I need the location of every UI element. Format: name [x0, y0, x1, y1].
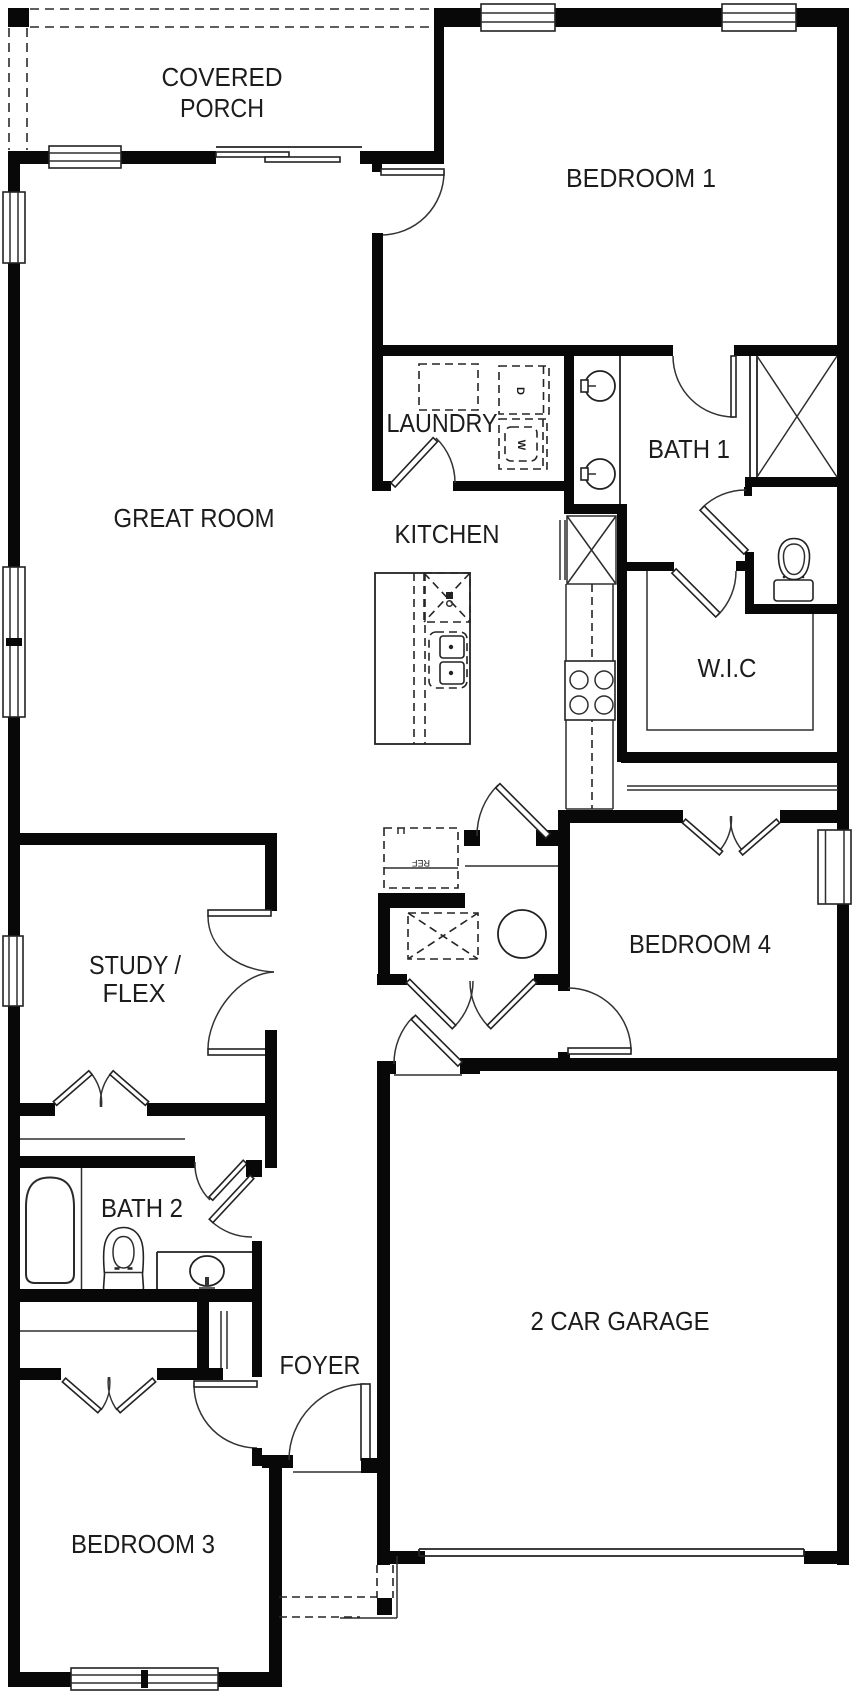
svg-text:BEDROOM 4: BEDROOM 4 — [629, 931, 771, 959]
svg-text:REF: REF — [411, 858, 430, 868]
svg-text:BEDROOM 3: BEDROOM 3 — [71, 1531, 215, 1559]
svg-text:GREAT ROOM: GREAT ROOM — [114, 505, 275, 533]
svg-text:BATH 2: BATH 2 — [101, 1195, 183, 1223]
svg-text:FLEX: FLEX — [103, 980, 166, 1008]
svg-text:BEDROOM 1: BEDROOM 1 — [566, 165, 716, 193]
svg-text:2 CAR GARAGE: 2 CAR GARAGE — [531, 1308, 710, 1336]
svg-text:LAUNDRY: LAUNDRY — [387, 410, 498, 438]
svg-text:FOYER: FOYER — [280, 1352, 361, 1380]
svg-text:KITCHEN: KITCHEN — [395, 521, 500, 549]
svg-text:PORCH: PORCH — [180, 95, 264, 123]
svg-text:W: W — [515, 440, 527, 451]
svg-text:STUDY /: STUDY / — [89, 952, 182, 980]
svg-text:COVERED: COVERED — [162, 64, 283, 92]
svg-text:D: D — [514, 387, 526, 395]
svg-text:W.I.C: W.I.C — [698, 655, 757, 683]
svg-text:BATH 1: BATH 1 — [648, 436, 730, 464]
